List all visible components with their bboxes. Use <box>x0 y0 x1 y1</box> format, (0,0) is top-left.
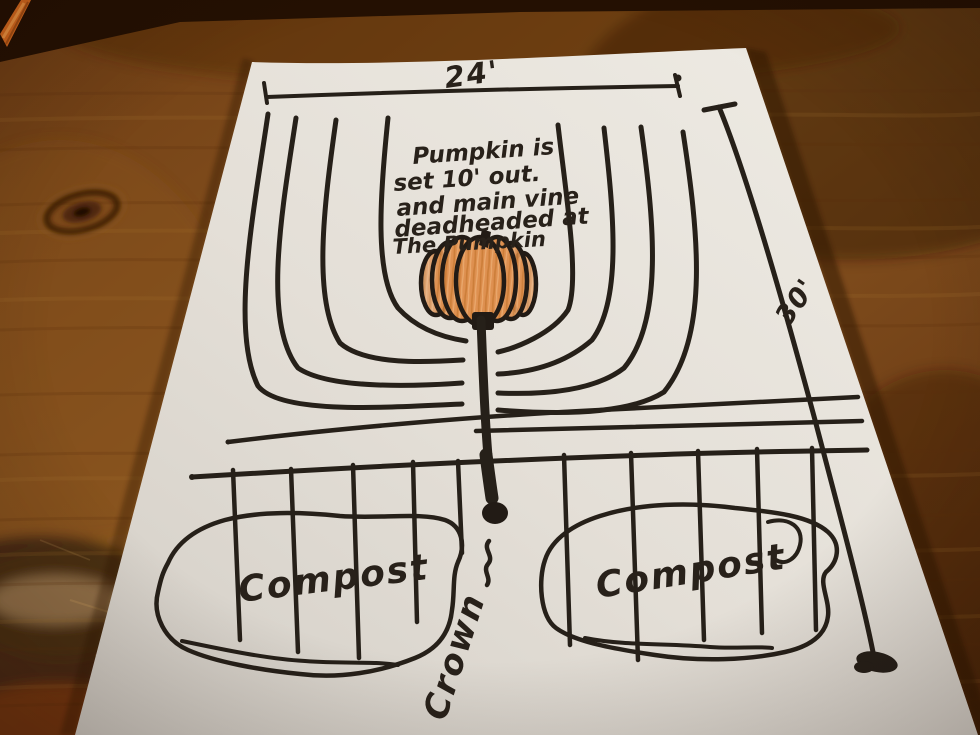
photo-of-garden-sketch: 24' 30' Pumpkin is set 10' out. and main… <box>0 0 980 735</box>
scene-canvas: 24' 30' Pumpkin is set 10' out. and main… <box>0 0 980 735</box>
photo-vignette <box>0 0 980 735</box>
